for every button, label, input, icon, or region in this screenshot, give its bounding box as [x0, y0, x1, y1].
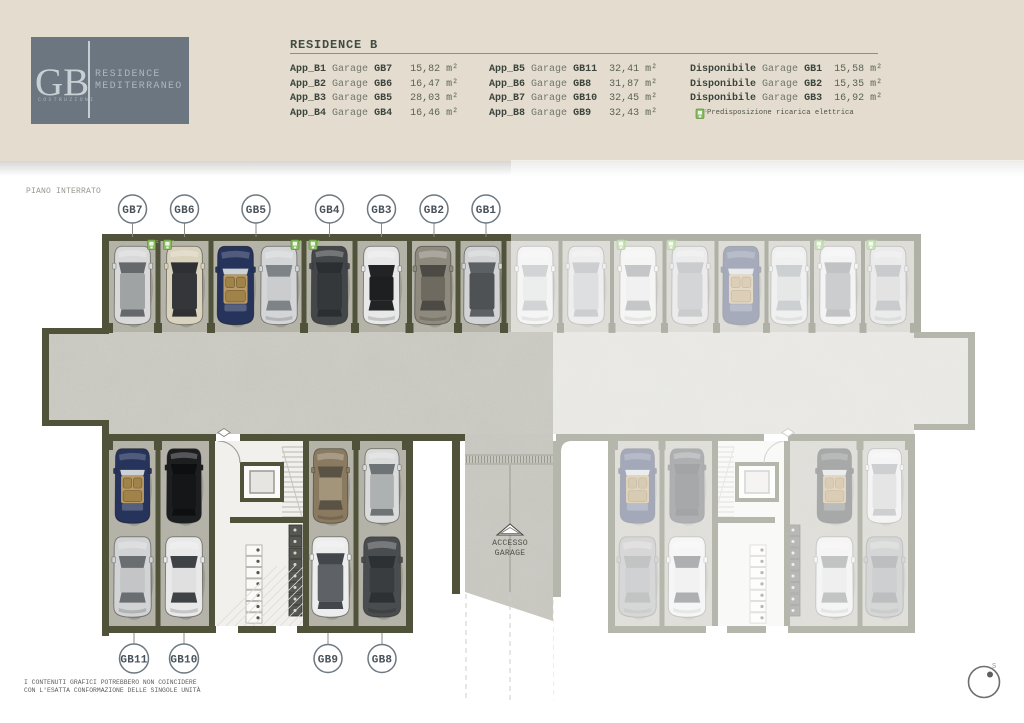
svg-text:GB6: GB6: [174, 205, 194, 217]
svg-text:CON L'ESATTA CONFORMAZIONE DEL: CON L'ESATTA CONFORMAZIONE DELLE SINGOLE…: [24, 686, 201, 694]
svg-text:GB7: GB7: [122, 205, 142, 217]
svg-text:GB8: GB8: [372, 654, 393, 666]
svg-text:GB4: GB4: [319, 205, 340, 217]
svg-text:I CONTENUTI GRAFICI POTREBBERO: I CONTENUTI GRAFICI POTREBBERO NON COINC…: [24, 679, 197, 686]
svg-text:PIANO INTERRATO: PIANO INTERRATO: [26, 187, 101, 196]
svg-text:GB9: GB9: [318, 654, 338, 666]
svg-text:GARAGE: GARAGE: [495, 549, 526, 558]
svg-text:GB1: GB1: [476, 205, 497, 217]
svg-text:GB11: GB11: [120, 654, 147, 666]
svg-text:ACCESSO: ACCESSO: [492, 539, 528, 548]
svg-text:GB5: GB5: [246, 205, 267, 217]
svg-text:GB3: GB3: [371, 205, 392, 217]
svg-text:GB2: GB2: [424, 205, 444, 217]
svg-text:S: S: [992, 663, 996, 671]
svg-text:GB10: GB10: [170, 654, 197, 666]
